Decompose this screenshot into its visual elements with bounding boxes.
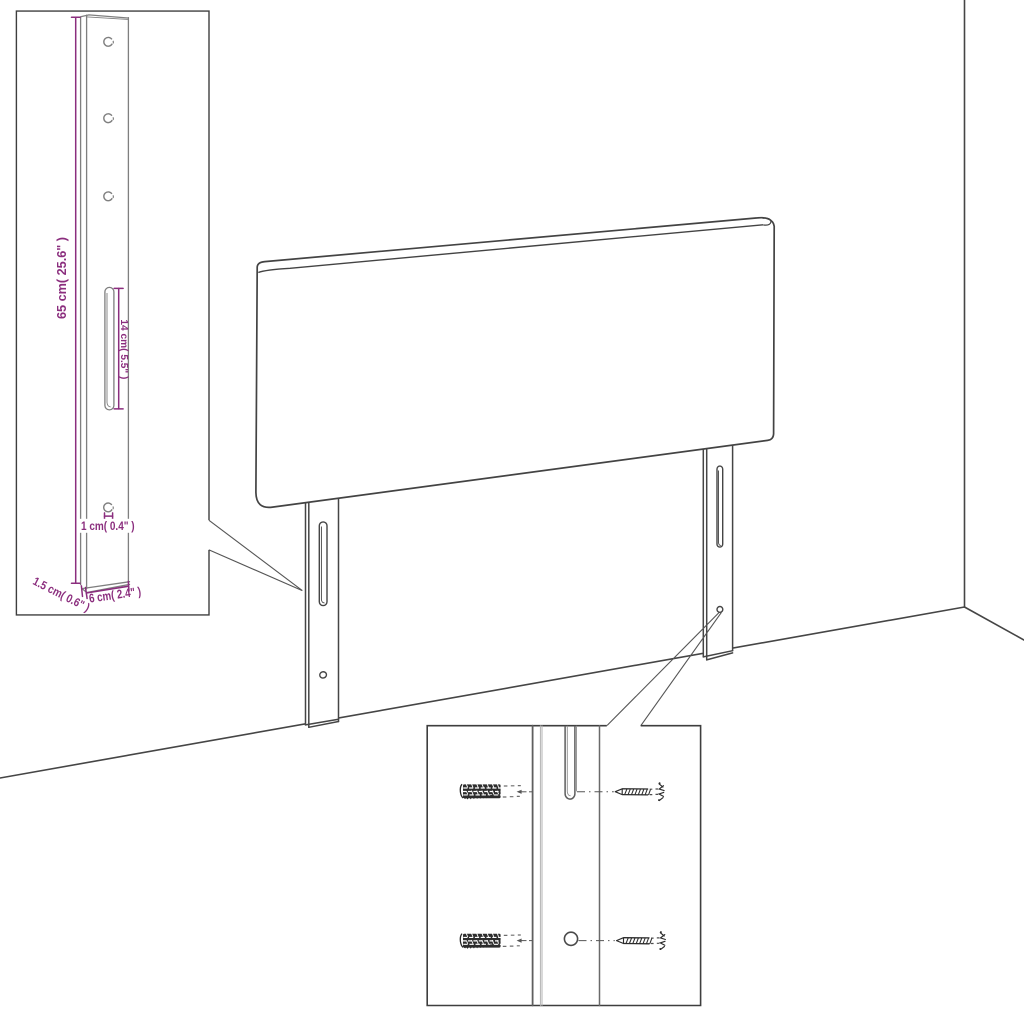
svg-text:65 cm( 25.6" ): 65 cm( 25.6" ) [55,237,69,319]
svg-text:14 cm( 5.5" ): 14 cm( 5.5" ) [118,319,129,379]
svg-text:1 cm( 0.4" ): 1 cm( 0.4" ) [81,519,135,533]
